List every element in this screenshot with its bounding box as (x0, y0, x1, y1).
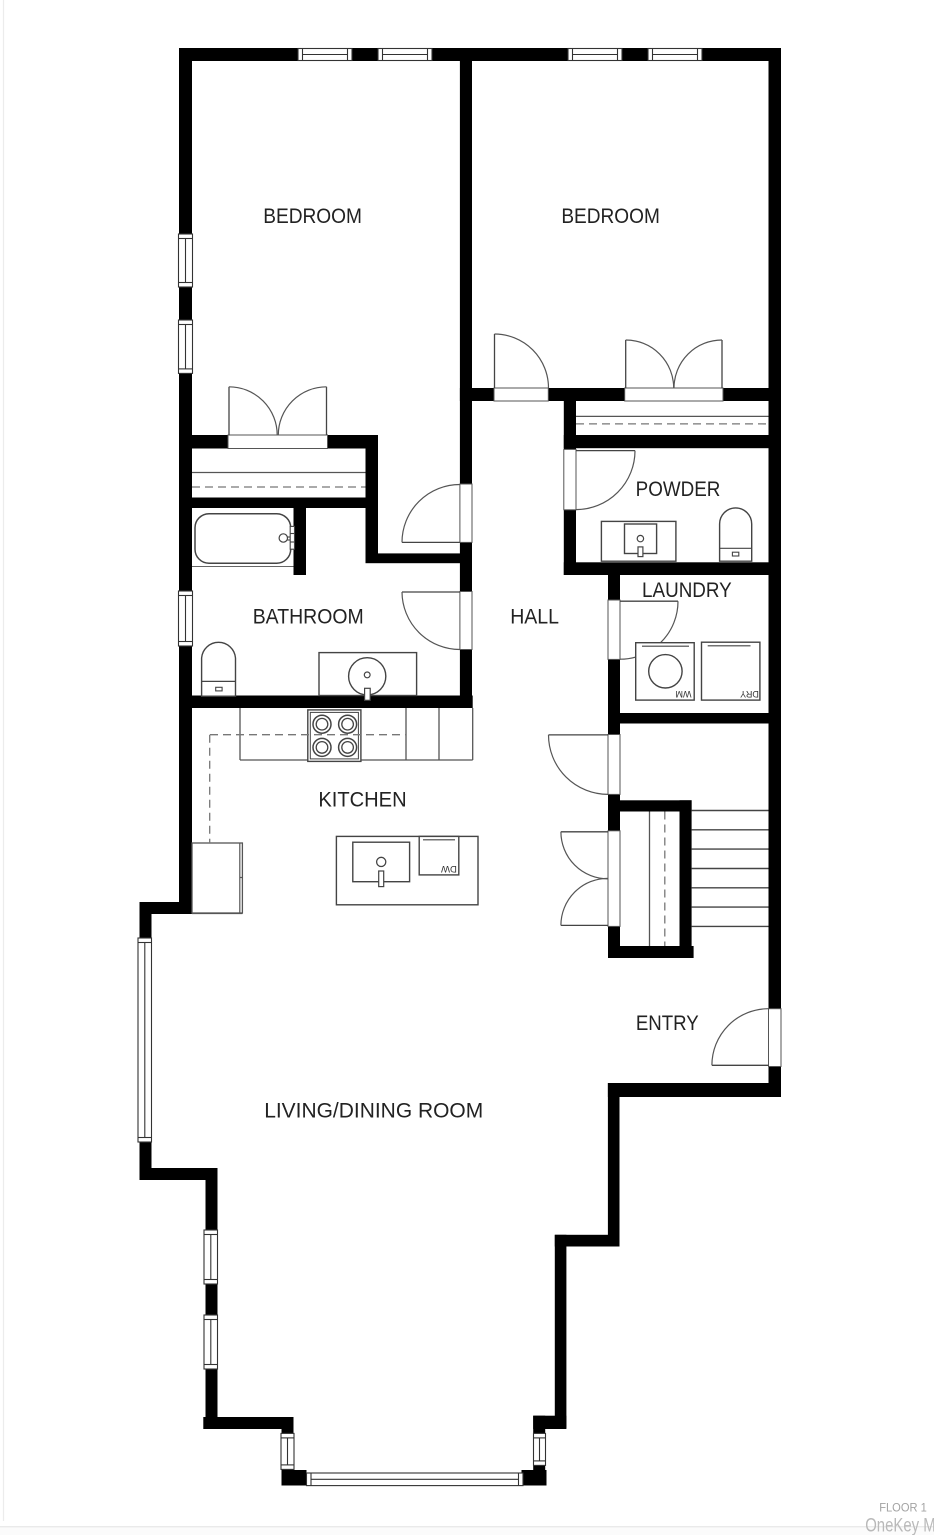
svg-text:DW: DW (441, 863, 457, 874)
svg-text:FLOOR 1: FLOOR 1 (879, 1502, 927, 1514)
svg-text:BATHROOM: BATHROOM (253, 606, 364, 629)
svg-text:OneKey M: OneKey M (865, 1515, 934, 1535)
svg-text:DRY: DRY (740, 689, 759, 699)
svg-text:WM: WM (676, 689, 692, 699)
svg-text:BEDROOM: BEDROOM (561, 205, 660, 228)
svg-text:POWDER: POWDER (636, 478, 721, 501)
svg-text:HALL: HALL (510, 605, 559, 628)
svg-text:BEDROOM: BEDROOM (263, 205, 362, 228)
svg-text:KITCHEN: KITCHEN (318, 789, 406, 812)
svg-text:ENTRY: ENTRY (636, 1012, 699, 1035)
svg-text:LAUNDRY: LAUNDRY (642, 579, 732, 602)
svg-text:LIVING/DINING ROOM: LIVING/DINING ROOM (264, 1100, 483, 1123)
